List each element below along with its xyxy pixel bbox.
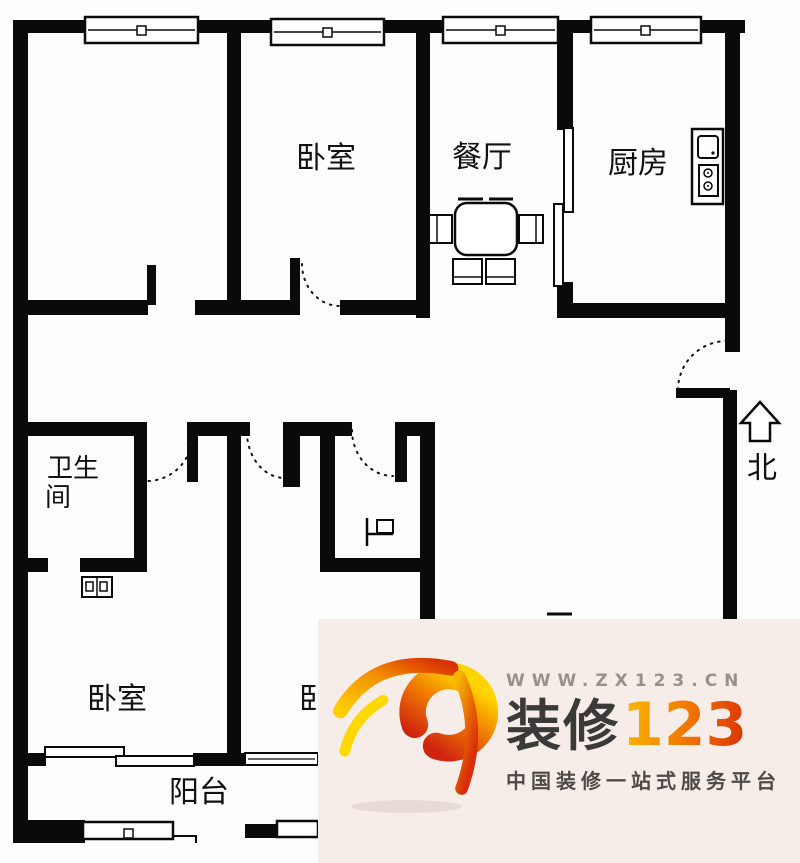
door-arc [302,264,340,306]
wall [13,300,148,315]
door-arc [147,436,192,481]
watermark-tagline: 中国装修一站式服务平台 [506,765,786,794]
wall [725,20,740,352]
watermark-panel: WWW.ZX123.CN 装修 123 中国装修一站式服务平台 [318,619,800,863]
door-leaf [147,265,156,305]
zx123-logo-icon [332,645,502,815]
sliding-door [554,128,573,286]
wall [13,422,147,436]
wall [80,558,147,572]
room-label-bedroom-bottom-left: 卧室 [87,682,147,717]
wall [227,33,241,303]
room-label-dining: 餐厅 [452,140,512,175]
north-arrow-icon [741,402,779,441]
door-arc [678,341,727,390]
dining-table [429,199,543,284]
wall [13,820,85,843]
room-label-kitchen: 厨房 [608,146,668,181]
floor-plan-page: 北 卧室 餐厅 厨房 卫生 间 卧室 卧室 阳台 [0,0,800,863]
watermark-url: WWW.ZX123.CN [506,671,786,691]
chair [429,215,452,243]
kitchen-unit [692,129,723,204]
wall [320,422,335,572]
chair [453,259,482,284]
watermark-text-block: WWW.ZX123.CN 装修 123 中国装修一站式服务平台 [506,671,786,794]
window [443,17,558,43]
room-label-bathroom-line2: 间 [45,483,71,513]
stove-icon [699,165,718,196]
wall [723,390,737,620]
wall [193,753,246,766]
door-arc [352,430,393,476]
window [271,19,384,45]
wall [283,422,352,436]
chair [519,215,543,243]
watermark-brand-cn: 装修 [506,699,620,754]
window [245,753,318,765]
wall [340,300,430,315]
watermark-brand-number: 123 [622,695,747,755]
window [83,822,196,843]
room-label-bathroom-line1: 卫生 [47,454,99,484]
room-label-balcony: 阳台 [169,775,229,810]
wall [227,422,241,766]
wall [134,422,147,570]
wall [195,300,290,315]
watermark-brand: 装修 123 [506,695,786,755]
sink-icon [698,136,718,158]
wall [332,558,435,572]
wall [676,388,730,398]
wall [27,558,48,572]
wall [557,33,573,130]
wall [420,422,435,620]
window [85,17,198,43]
chair [486,259,515,284]
room-label-bedroom-top: 卧室 [296,141,356,176]
north-label: 北 [747,451,777,486]
door-fixture-icon [367,518,393,546]
wall [416,33,430,318]
window [277,821,318,837]
window [591,17,701,43]
wall [290,258,300,315]
door-arc [247,432,285,478]
washbasin-icon [82,577,112,597]
sliding-door [45,747,194,766]
north-compass: 北 [741,402,779,486]
wall [557,303,730,318]
wall [13,753,46,766]
wall [245,824,278,838]
